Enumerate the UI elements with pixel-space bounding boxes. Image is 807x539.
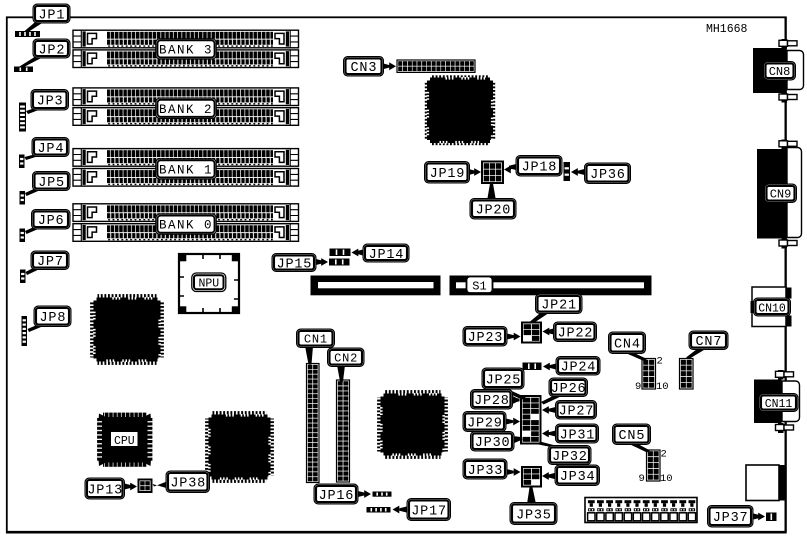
svg-text:BANK 0: BANK 0 <box>159 219 213 233</box>
svg-text:JP7: JP7 <box>37 255 64 270</box>
svg-text:JP4: JP4 <box>38 142 65 157</box>
svg-text:JP16: JP16 <box>319 489 355 504</box>
svg-text:CN2: CN2 <box>334 352 358 366</box>
svg-text:CN10: CN10 <box>758 302 786 315</box>
svg-text:S1: S1 <box>472 280 486 294</box>
svg-text:JP27: JP27 <box>559 405 595 420</box>
svg-text:BANK 3: BANK 3 <box>159 43 213 57</box>
svg-text:CN9: CN9 <box>770 188 792 202</box>
svg-text:JP22: JP22 <box>558 327 594 342</box>
svg-text:JP13: JP13 <box>87 484 123 499</box>
svg-text:JP17: JP17 <box>411 505 447 520</box>
svg-text:CN7: CN7 <box>696 335 723 350</box>
svg-text:JP15: JP15 <box>277 258 313 273</box>
svg-text:CN4: CN4 <box>614 338 641 353</box>
svg-text:CPU: CPU <box>114 435 135 448</box>
svg-text:9: 9 <box>639 473 645 485</box>
svg-text:JP2: JP2 <box>39 44 66 59</box>
svg-text:JP20: JP20 <box>476 204 512 219</box>
svg-text:JP37: JP37 <box>713 511 749 526</box>
svg-text:JP19: JP19 <box>430 167 466 182</box>
svg-text:JP36: JP36 <box>590 168 626 183</box>
svg-text:JP31: JP31 <box>560 429 596 444</box>
svg-text:10: 10 <box>660 473 673 485</box>
svg-text:JP28: JP28 <box>474 394 510 409</box>
svg-text:JP18: JP18 <box>522 161 558 176</box>
svg-text:9: 9 <box>635 381 641 393</box>
svg-text:JP38: JP38 <box>170 477 206 492</box>
svg-text:JP24: JP24 <box>561 361 597 376</box>
svg-text:JP35: JP35 <box>516 509 552 524</box>
svg-text:JP25: JP25 <box>486 374 522 389</box>
svg-text:JP30: JP30 <box>475 436 511 451</box>
svg-text:NPU: NPU <box>198 278 219 291</box>
svg-text:JP21: JP21 <box>541 299 577 314</box>
svg-text:JP14: JP14 <box>369 248 405 263</box>
svg-text:CN5: CN5 <box>619 429 646 444</box>
svg-text:2: 2 <box>657 356 663 368</box>
svg-text:JP34: JP34 <box>560 470 596 485</box>
svg-text:CN8: CN8 <box>769 65 791 79</box>
svg-text:JP32: JP32 <box>552 450 588 465</box>
svg-text:MH1668: MH1668 <box>706 23 748 36</box>
svg-text:CN3: CN3 <box>351 61 378 76</box>
svg-text:CN11: CN11 <box>765 398 793 411</box>
svg-text:JP8: JP8 <box>40 311 67 326</box>
svg-text:2: 2 <box>661 449 667 461</box>
svg-text:10: 10 <box>656 381 669 393</box>
svg-text:CN1: CN1 <box>304 333 328 347</box>
svg-text:JP3: JP3 <box>37 95 64 110</box>
svg-text:JP26: JP26 <box>551 382 587 397</box>
svg-text:JP1: JP1 <box>39 9 66 24</box>
svg-text:JP33: JP33 <box>468 464 504 479</box>
svg-text:BANK 1: BANK 1 <box>159 163 213 177</box>
svg-text:JP29: JP29 <box>467 417 503 432</box>
svg-text:BANK 2: BANK 2 <box>159 103 213 117</box>
svg-text:JP6: JP6 <box>38 214 65 229</box>
svg-text:JP23: JP23 <box>468 331 504 346</box>
svg-text:JP5: JP5 <box>38 176 65 191</box>
